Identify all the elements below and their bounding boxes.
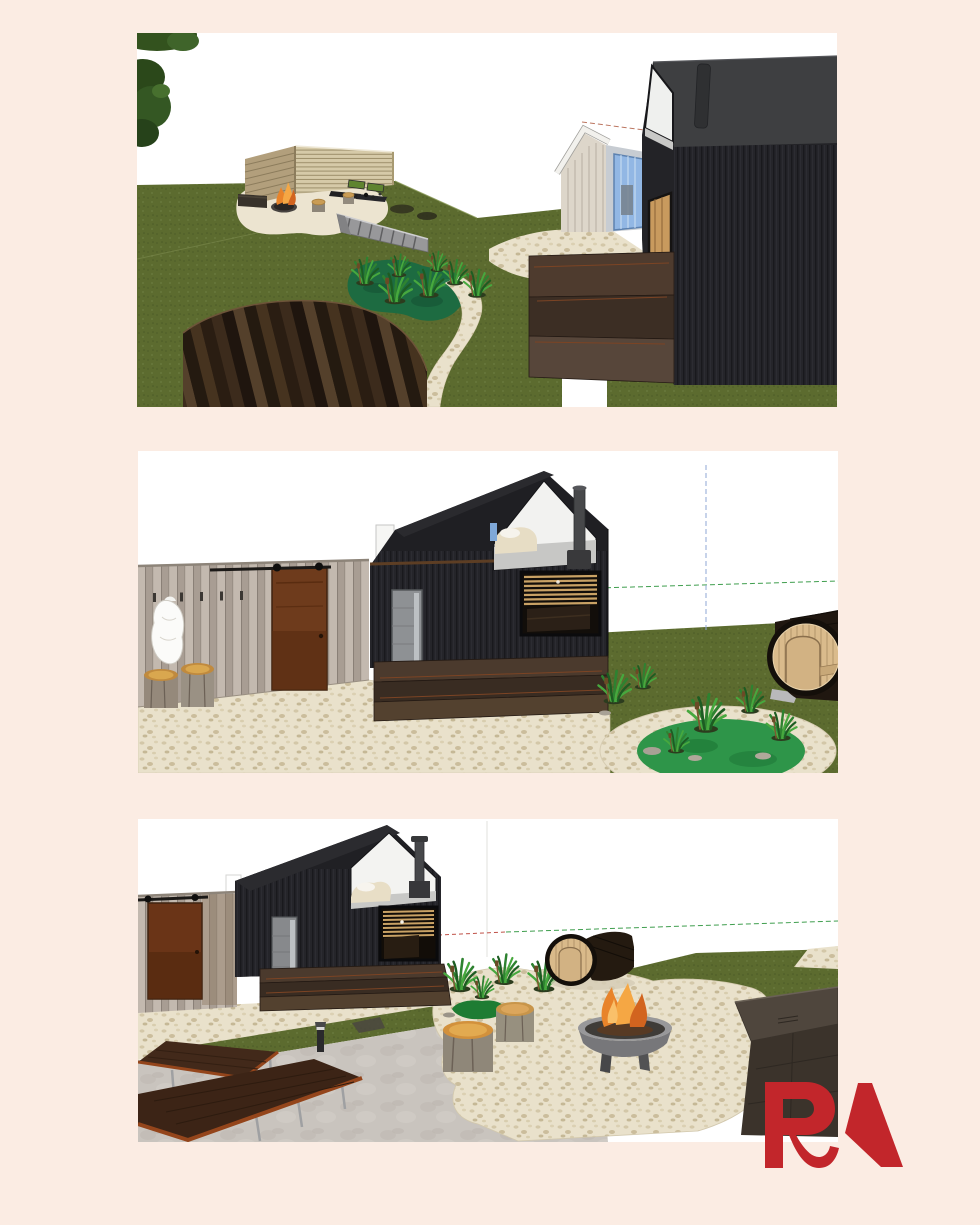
sauna-window xyxy=(521,572,600,635)
cabin-door xyxy=(392,590,422,664)
render-view-1 xyxy=(137,33,837,407)
sauna-window xyxy=(380,907,437,960)
render-view-2 xyxy=(138,451,838,773)
render-view-2-illustration xyxy=(138,451,838,773)
page-canvas: { "page": { "background_color": "#fbece3… xyxy=(0,0,980,1225)
ra-logo-mark xyxy=(756,1072,926,1182)
ra-logo: RA xyxy=(756,1072,926,1182)
render-view-1-illustration xyxy=(137,33,837,407)
barrel-sauna xyxy=(545,932,635,990)
changing-wall xyxy=(138,892,237,1013)
cabin-steps xyxy=(529,252,674,383)
logo-letter-a xyxy=(845,1083,903,1167)
render-view-3-illustration xyxy=(138,819,838,1142)
cabin-steps xyxy=(374,656,608,721)
render-view-3 xyxy=(138,819,838,1142)
barn-door xyxy=(138,894,208,999)
cabin-steps xyxy=(260,964,451,1011)
logo-letter-r xyxy=(765,1082,783,1168)
